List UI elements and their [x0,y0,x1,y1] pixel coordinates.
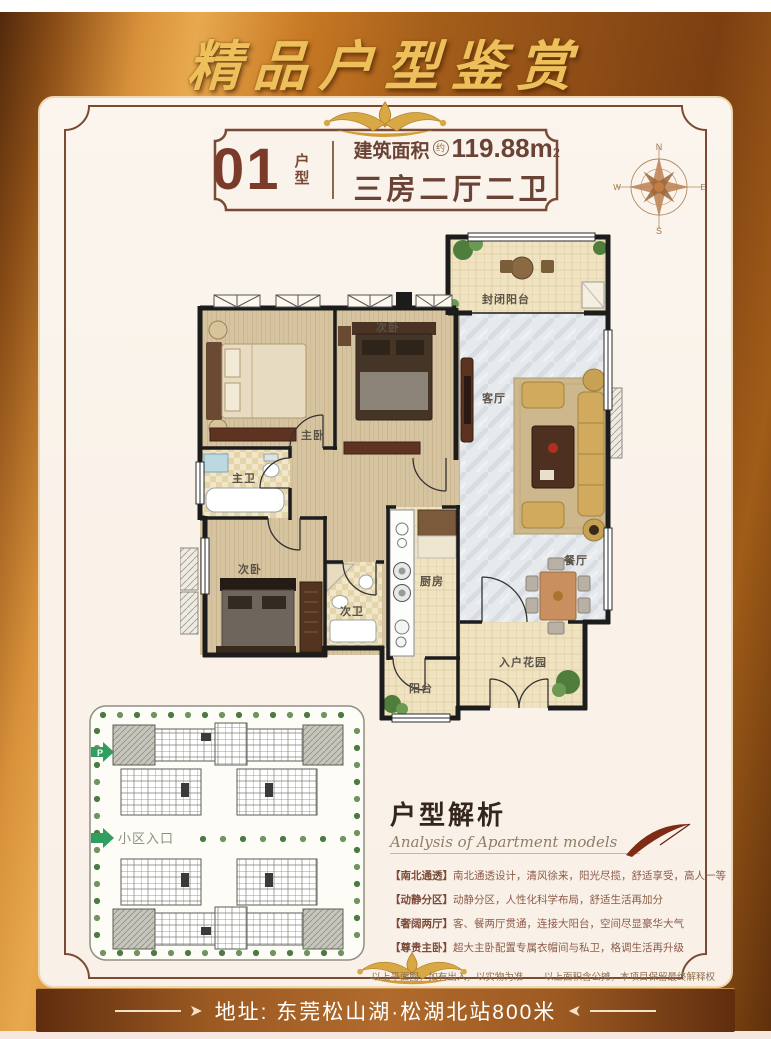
disclaimer-part1: 以上平面图，如有出入，以实物为准 [371,972,523,983]
unit-badge: 01 户型 建筑面积 约 119.88m 2 三房二厅二卫 [212,127,560,213]
disclaimer: 以上平面图，如有出入，以实物为准 以上面积含公摊，本项目保留最终解释权 [371,969,715,983]
analysis-item: 【奢阔两厅】客、餐两厅贯通，连接大阳台，空间尽显豪华大气 [390,912,722,936]
svg-text:主卧: 主卧 [301,428,325,442]
svg-text:次卫: 次卫 [340,604,364,618]
svg-text:S: S [656,226,662,235]
bottom-strip [0,1031,771,1039]
svg-text:E: E [700,183,705,192]
svg-text:客厅: 客厅 [481,391,506,405]
analysis-section: 户型解析 Analysis of Apartment models 【南北通透】… [390,795,722,960]
flourish-line-right [590,1010,656,1012]
svg-text:主卫: 主卫 [232,471,256,485]
svg-text:W: W [613,183,621,192]
flyer-page: 精品户型鉴赏 01 户型 建筑面积 约 119.88m 2 三房二厅二卫 [0,0,771,1039]
svg-text:次卧: 次卧 [238,562,262,576]
svg-text:封闭阳台: 封闭阳台 [482,292,530,306]
address-text: 地址: 东莞松山湖·松湖北站800米 [215,996,557,1026]
badge-divider [332,141,334,199]
analysis-subtitle-text: Analysis of Apartment models [390,833,617,851]
flourish-arrow-right-icon: ➤ [566,1001,581,1021]
address-bar: ➤ 地址: 东莞松山湖·松湖北站800米 ➤ [36,988,735,1032]
analysis-item: 【尊贵主卧】超大主卧配置专属衣帽间与私卫，格调生活再升级 [390,936,722,960]
area-approx-circle: 约 [433,140,449,156]
area-value: 119.88m [452,133,553,164]
compass-rose-icon: N S W E [612,140,707,235]
svg-text:阳台: 阳台 [409,681,433,695]
badge-content: 01 户型 建筑面积 约 119.88m 2 三房二厅二卫 [212,127,560,213]
siteplan: P 小区入口 [85,703,375,965]
feather-icon [622,819,696,861]
disclaimer-part2: 以上面积含公摊，本项目保留最终解释权 [544,972,715,983]
analysis-subtitle: Analysis of Apartment models [390,833,640,854]
svg-text:厨房: 厨房 [420,574,444,588]
unit-type-label: 户型 [295,153,312,187]
svg-text:入户花园: 入户花园 [499,655,547,669]
analysis-item: 【动静分区】动静分区，人性化科学布局，舒适生活再加分 [390,888,722,912]
analysis-item: 【南北通透】南北通透设计，清风徐来，阳光尽揽，舒适享受，高人一等 [390,864,722,888]
badge-specs: 建筑面积 约 119.88m 2 三房二厅二卫 [354,133,560,208]
analysis-list: 【南北通透】南北通透设计，清风徐来，阳光尽揽，舒适享受，高人一等 【动静分区】动… [390,864,722,960]
area-row: 建筑面积 约 119.88m 2 [354,133,560,164]
svg-text:餐厅: 餐厅 [563,553,588,567]
svg-text:N: N [656,142,663,152]
area-exponent: 2 [553,145,560,160]
area-label: 建筑面积 [354,136,430,163]
banner-title: 精品户型鉴赏 [0,22,771,101]
flourish-arrow-left-icon: ➤ [189,1001,204,1021]
entrance-arrow: 小区入口 [91,828,174,848]
unit-number: 01 [212,141,281,199]
floorplan: 封闭阳台 客厅 主卧 次卧 次卧 主卫 次卫 厨房 餐厅 入户花园 阳台 [180,230,640,770]
svg-text:次卧: 次卧 [376,320,400,334]
svg-text:小区入口: 小区入口 [118,831,174,846]
layout-text: 三房二厅二卫 [354,166,560,208]
svg-text:P: P [97,748,103,758]
top-white-strip [0,0,771,12]
flourish-line-left [115,1010,181,1012]
